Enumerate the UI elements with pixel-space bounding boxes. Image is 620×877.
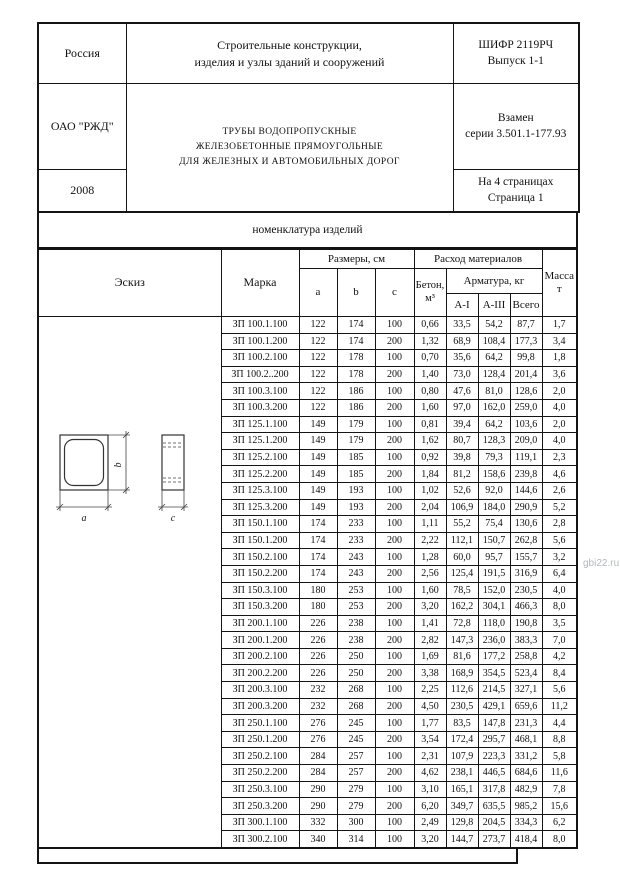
- value-cell: 112,1: [446, 532, 478, 549]
- value-cell: 0,66: [414, 317, 446, 334]
- value-cell: 418,4: [510, 831, 542, 848]
- value-cell: 226: [299, 615, 337, 632]
- value-cell: 1,7: [542, 317, 577, 334]
- value-cell: 200: [375, 665, 414, 682]
- value-cell: 230,5: [510, 582, 542, 599]
- value-cell: 523,4: [510, 665, 542, 682]
- value-cell: 11,6: [542, 765, 577, 782]
- value-cell: 4,4: [542, 715, 577, 732]
- doc-title-line2: ЖЕЛЕЗОБЕТОННЫЕ ПРЯМОУГОЛЬНЫЕ: [131, 140, 449, 155]
- value-cell: 39,4: [446, 416, 478, 433]
- mark-cell: ЗП 250.2.100: [221, 748, 299, 765]
- replaces-line2: серии 3.501.1-177.93: [458, 127, 575, 143]
- value-cell: 2,0: [542, 383, 577, 400]
- value-cell: 168,9: [446, 665, 478, 682]
- value-cell: 200: [375, 731, 414, 748]
- mark-cell: ЗП 100.1.200: [221, 333, 299, 350]
- mass-line2: т: [544, 283, 576, 296]
- value-cell: 122: [299, 383, 337, 400]
- value-cell: 3,6: [542, 366, 577, 383]
- dim-c: [158, 490, 188, 511]
- doc-title-line3: ДЛЯ ЖЕЛЕЗНЫХ И АВТОМОБИЛЬНЫХ ДОРОГ: [131, 155, 449, 170]
- doc-title-line1: ТРУБЫ ВОДОПРОПУСКНЫЕ: [131, 125, 449, 140]
- mark-cell: ЗП 250.1.200: [221, 731, 299, 748]
- value-cell: 2,82: [414, 632, 446, 649]
- value-cell: 95,7: [478, 549, 510, 566]
- value-cell: 349,7: [446, 798, 478, 815]
- value-cell: 279: [337, 798, 375, 815]
- value-cell: 200: [375, 366, 414, 383]
- value-cell: 15,6: [542, 798, 577, 815]
- value-cell: 2,0: [542, 416, 577, 433]
- mark-cell: ЗП 125.3.200: [221, 499, 299, 516]
- value-cell: 245: [337, 731, 375, 748]
- value-cell: 231,3: [510, 715, 542, 732]
- value-cell: 103,6: [510, 416, 542, 433]
- value-cell: 150,7: [478, 532, 510, 549]
- value-cell: 2,31: [414, 748, 446, 765]
- value-cell: 149: [299, 499, 337, 516]
- value-cell: 327,1: [510, 682, 542, 699]
- value-cell: 122: [299, 399, 337, 416]
- mark-cell: ЗП 100.3.200: [221, 399, 299, 416]
- value-cell: 204,5: [478, 814, 510, 831]
- value-cell: 2,49: [414, 814, 446, 831]
- concrete-line1: Бетон,: [416, 280, 445, 292]
- col-header-materials: Расход материалов: [414, 250, 542, 269]
- value-cell: 180: [299, 599, 337, 616]
- value-cell: 174: [299, 516, 337, 533]
- value-cell: 83,5: [446, 715, 478, 732]
- value-cell: 6,2: [542, 814, 577, 831]
- value-cell: 155,7: [510, 549, 542, 566]
- value-cell: 4,0: [542, 399, 577, 416]
- value-cell: 75,4: [478, 516, 510, 533]
- mark-cell: ЗП 100.2.100: [221, 350, 299, 367]
- value-cell: 3,54: [414, 731, 446, 748]
- value-cell: 100: [375, 781, 414, 798]
- value-cell: 128,6: [510, 383, 542, 400]
- value-cell: 119,1: [510, 449, 542, 466]
- col-header-mass: Масса т: [542, 250, 577, 317]
- value-cell: 200: [375, 399, 414, 416]
- value-cell: 186: [337, 399, 375, 416]
- value-cell: 130,6: [510, 516, 542, 533]
- value-cell: 3,5: [542, 615, 577, 632]
- value-cell: 147,8: [478, 715, 510, 732]
- value-cell: 3,2: [542, 549, 577, 566]
- value-cell: 262,8: [510, 532, 542, 549]
- section-title: номенклатура изделий: [37, 213, 578, 249]
- value-cell: 72,8: [446, 615, 478, 632]
- value-cell: 1,69: [414, 648, 446, 665]
- value-cell: 201,4: [510, 366, 542, 383]
- value-cell: 4,62: [414, 765, 446, 782]
- value-cell: 429,1: [478, 698, 510, 715]
- value-cell: 174: [337, 333, 375, 350]
- value-cell: 4,6: [542, 466, 577, 483]
- value-cell: 1,84: [414, 466, 446, 483]
- value-cell: 317,8: [478, 781, 510, 798]
- col-header-c: c: [375, 269, 414, 317]
- value-cell: 233: [337, 516, 375, 533]
- value-cell: 100: [375, 831, 414, 848]
- value-cell: 73,0: [446, 366, 478, 383]
- watermark-text: gbi22.ru: [583, 558, 619, 569]
- value-cell: 193: [337, 482, 375, 499]
- value-cell: 0,70: [414, 350, 446, 367]
- value-cell: 4,50: [414, 698, 446, 715]
- value-cell: 178: [337, 350, 375, 367]
- value-cell: 33,5: [446, 317, 478, 334]
- value-cell: 332: [299, 814, 337, 831]
- value-cell: 179: [337, 416, 375, 433]
- mark-cell: ЗП 125.1.100: [221, 416, 299, 433]
- value-cell: 100: [375, 582, 414, 599]
- doc-title-cell: ТРУБЫ ВОДОПРОПУСКНЫЕ ЖЕЛЕЗОБЕТОННЫЕ ПРЯМ…: [126, 84, 453, 213]
- mark-cell: ЗП 200.2.100: [221, 648, 299, 665]
- value-cell: 214,5: [478, 682, 510, 699]
- value-cell: 191,5: [478, 565, 510, 582]
- value-cell: 250: [337, 648, 375, 665]
- value-cell: 200: [375, 499, 414, 516]
- value-cell: 108,4: [478, 333, 510, 350]
- value-cell: 635,5: [478, 798, 510, 815]
- value-cell: 60,0: [446, 549, 478, 566]
- value-cell: 268: [337, 698, 375, 715]
- mark-cell: ЗП 200.1.200: [221, 632, 299, 649]
- pages-cell: На 4 страницах Страница 1: [453, 170, 579, 213]
- value-cell: 226: [299, 665, 337, 682]
- value-cell: 236,0: [478, 632, 510, 649]
- value-cell: 985,2: [510, 798, 542, 815]
- value-cell: 184,0: [478, 499, 510, 516]
- value-cell: 100: [375, 449, 414, 466]
- value-cell: 5,2: [542, 499, 577, 516]
- pages-line1: На 4 страницах: [458, 175, 575, 191]
- value-cell: 174: [299, 532, 337, 549]
- value-cell: 243: [337, 565, 375, 582]
- value-cell: 190,8: [510, 615, 542, 632]
- value-cell: 200: [375, 565, 414, 582]
- table-row: b a: [38, 317, 577, 334]
- value-cell: 290: [299, 798, 337, 815]
- value-cell: 100: [375, 814, 414, 831]
- value-cell: 1,8: [542, 350, 577, 367]
- value-cell: 226: [299, 632, 337, 649]
- value-cell: 1,40: [414, 366, 446, 383]
- value-cell: 200: [375, 698, 414, 715]
- value-cell: 100: [375, 549, 414, 566]
- value-cell: 100: [375, 715, 414, 732]
- value-cell: 200: [375, 599, 414, 616]
- value-cell: 55,2: [446, 516, 478, 533]
- value-cell: 100: [375, 482, 414, 499]
- value-cell: 250: [337, 665, 375, 682]
- value-cell: 8,4: [542, 665, 577, 682]
- value-cell: 482,9: [510, 781, 542, 798]
- value-cell: 2,25: [414, 682, 446, 699]
- value-cell: 4,0: [542, 582, 577, 599]
- value-cell: 178: [337, 366, 375, 383]
- value-cell: 92,0: [478, 482, 510, 499]
- value-cell: 122: [299, 333, 337, 350]
- value-cell: 81,2: [446, 466, 478, 483]
- value-cell: 466,3: [510, 599, 542, 616]
- value-cell: 5,6: [542, 532, 577, 549]
- value-cell: 186: [337, 383, 375, 400]
- value-cell: 295,7: [478, 731, 510, 748]
- value-cell: 64,2: [478, 350, 510, 367]
- value-cell: 162,2: [446, 599, 478, 616]
- value-cell: 162,0: [478, 399, 510, 416]
- value-cell: 684,6: [510, 765, 542, 782]
- col-header-rebar-a3: A-III: [478, 294, 510, 317]
- col-header-a: a: [299, 269, 337, 317]
- value-cell: 276: [299, 731, 337, 748]
- value-cell: 122: [299, 366, 337, 383]
- value-cell: 1,62: [414, 433, 446, 450]
- mark-cell: ЗП 200.3.200: [221, 698, 299, 715]
- value-cell: 2,56: [414, 565, 446, 582]
- value-cell: 279: [337, 781, 375, 798]
- code-cell: ШИФР 2119РЧ Выпуск 1-1: [453, 23, 579, 84]
- value-cell: 1,60: [414, 582, 446, 599]
- value-cell: 1,41: [414, 615, 446, 632]
- value-cell: 125,4: [446, 565, 478, 582]
- value-cell: 158,6: [478, 466, 510, 483]
- mark-cell: ЗП 300.1.100: [221, 814, 299, 831]
- document-page: Россия Строительные конструкции, изделия…: [37, 22, 578, 864]
- mark-cell: ЗП 150.3.200: [221, 599, 299, 616]
- mark-cell: ЗП 125.3.100: [221, 482, 299, 499]
- country-cell: Россия: [38, 23, 126, 84]
- sketch-cell: b a: [38, 317, 221, 849]
- value-cell: 64,2: [478, 416, 510, 433]
- footer-strip: [37, 849, 518, 864]
- mark-cell: ЗП 100.2..200: [221, 366, 299, 383]
- value-cell: 100: [375, 648, 414, 665]
- value-cell: 253: [337, 599, 375, 616]
- value-cell: 152,0: [478, 582, 510, 599]
- value-cell: 47,6: [446, 383, 478, 400]
- value-cell: 100: [375, 416, 414, 433]
- value-cell: 3,20: [414, 831, 446, 848]
- mark-cell: ЗП 200.2.200: [221, 665, 299, 682]
- nomenclature-table: Эскиз Марка Размеры, см Расход материало…: [37, 249, 578, 849]
- value-cell: 209,0: [510, 433, 542, 450]
- value-cell: 149: [299, 466, 337, 483]
- value-cell: 200: [375, 433, 414, 450]
- value-cell: 3,20: [414, 599, 446, 616]
- value-cell: 144,7: [446, 831, 478, 848]
- value-cell: 179: [337, 433, 375, 450]
- mark-cell: ЗП 100.3.100: [221, 383, 299, 400]
- value-cell: 468,1: [510, 731, 542, 748]
- value-cell: 128,3: [478, 433, 510, 450]
- year-cell: 2008: [38, 170, 126, 213]
- value-cell: 8,0: [542, 831, 577, 848]
- value-cell: 54,2: [478, 317, 510, 334]
- value-cell: 273,7: [478, 831, 510, 848]
- value-cell: 3,4: [542, 333, 577, 350]
- value-cell: 340: [299, 831, 337, 848]
- value-cell: 300: [337, 814, 375, 831]
- value-cell: 226: [299, 648, 337, 665]
- value-cell: 259,0: [510, 399, 542, 416]
- dim-b: [108, 431, 130, 494]
- replaces-cell: Взамен серии 3.501.1-177.93: [453, 84, 579, 170]
- col-header-rebar: Арматура, кг: [446, 269, 542, 294]
- value-cell: 1,77: [414, 715, 446, 732]
- value-cell: 99,8: [510, 350, 542, 367]
- value-cell: 2,3: [542, 449, 577, 466]
- value-cell: 238: [337, 615, 375, 632]
- mark-cell: ЗП 250.3.200: [221, 798, 299, 815]
- value-cell: 177,2: [478, 648, 510, 665]
- value-cell: 129,8: [446, 814, 478, 831]
- value-cell: 68,9: [446, 333, 478, 350]
- col-header-concrete: Бетон, м³: [414, 269, 446, 317]
- value-cell: 79,3: [478, 449, 510, 466]
- value-cell: 100: [375, 350, 414, 367]
- value-cell: 284: [299, 765, 337, 782]
- value-cell: 1,11: [414, 516, 446, 533]
- value-cell: 1,60: [414, 399, 446, 416]
- side-view-hidden-lines: [163, 443, 183, 482]
- value-cell: 144,6: [510, 482, 542, 499]
- value-cell: 232: [299, 682, 337, 699]
- value-cell: 149: [299, 449, 337, 466]
- value-cell: 2,04: [414, 499, 446, 516]
- mark-cell: ЗП 125.2.100: [221, 449, 299, 466]
- value-cell: 6,4: [542, 565, 577, 582]
- mark-cell: ЗП 250.1.100: [221, 715, 299, 732]
- value-cell: 200: [375, 532, 414, 549]
- value-cell: 87,7: [510, 317, 542, 334]
- value-cell: 1,02: [414, 482, 446, 499]
- value-cell: 354,5: [478, 665, 510, 682]
- value-cell: 257: [337, 765, 375, 782]
- value-cell: 276: [299, 715, 337, 732]
- value-cell: 149: [299, 416, 337, 433]
- value-cell: 2,6: [542, 482, 577, 499]
- value-cell: 100: [375, 516, 414, 533]
- mark-cell: ЗП 250.2.200: [221, 765, 299, 782]
- col-header-dimensions: Размеры, см: [299, 250, 414, 269]
- value-cell: 100: [375, 383, 414, 400]
- value-cell: 200: [375, 632, 414, 649]
- front-view: [60, 435, 108, 490]
- col-header-mark: Марка: [221, 250, 299, 317]
- value-cell: 243: [337, 549, 375, 566]
- value-cell: 174: [299, 565, 337, 582]
- dim-a: [56, 490, 112, 511]
- dim-label-a: a: [81, 513, 86, 524]
- value-cell: 107,9: [446, 748, 478, 765]
- mark-cell: ЗП 150.2.100: [221, 549, 299, 566]
- value-cell: 238,1: [446, 765, 478, 782]
- value-cell: 334,3: [510, 814, 542, 831]
- mark-cell: ЗП 200.1.100: [221, 615, 299, 632]
- col-header-sketch: Эскиз: [38, 250, 221, 317]
- category-cell: Строительные конструкции, изделия и узлы…: [126, 23, 453, 84]
- value-cell: 446,5: [478, 765, 510, 782]
- value-cell: 2,22: [414, 532, 446, 549]
- col-header-rebar-total: Всего: [510, 294, 542, 317]
- value-cell: 112,6: [446, 682, 478, 699]
- mark-cell: ЗП 150.3.100: [221, 582, 299, 599]
- value-cell: 106,9: [446, 499, 478, 516]
- mark-cell: ЗП 150.1.100: [221, 516, 299, 533]
- value-cell: 165,1: [446, 781, 478, 798]
- value-cell: 659,6: [510, 698, 542, 715]
- value-cell: 100: [375, 748, 414, 765]
- value-cell: 258,8: [510, 648, 542, 665]
- value-cell: 174: [337, 317, 375, 334]
- value-cell: 1,28: [414, 549, 446, 566]
- pages-line2: Страница 1: [458, 191, 575, 207]
- value-cell: 383,3: [510, 632, 542, 649]
- mark-cell: ЗП 250.3.100: [221, 781, 299, 798]
- value-cell: 331,2: [510, 748, 542, 765]
- value-cell: 8,8: [542, 731, 577, 748]
- value-cell: 0,80: [414, 383, 446, 400]
- value-cell: 200: [375, 333, 414, 350]
- mark-cell: ЗП 100.1.100: [221, 317, 299, 334]
- value-cell: 5,6: [542, 682, 577, 699]
- value-cell: 122: [299, 317, 337, 334]
- concrete-line2: м³: [416, 293, 445, 305]
- value-cell: 316,9: [510, 565, 542, 582]
- value-cell: 81,0: [478, 383, 510, 400]
- code-line2: Выпуск 1-1: [458, 54, 575, 70]
- value-cell: 4,2: [542, 648, 577, 665]
- value-cell: 100: [375, 615, 414, 632]
- value-cell: 193: [337, 499, 375, 516]
- value-cell: 233: [337, 532, 375, 549]
- value-cell: 200: [375, 798, 414, 815]
- value-cell: 78,5: [446, 582, 478, 599]
- value-cell: 1,32: [414, 333, 446, 350]
- value-cell: 223,3: [478, 748, 510, 765]
- value-cell: 3,10: [414, 781, 446, 798]
- value-cell: 304,1: [478, 599, 510, 616]
- value-cell: 290,9: [510, 499, 542, 516]
- value-cell: 6,20: [414, 798, 446, 815]
- value-cell: 52,6: [446, 482, 478, 499]
- value-cell: 118,0: [478, 615, 510, 632]
- pipe-sketch-drawing: b a: [50, 429, 210, 529]
- value-cell: 238: [337, 632, 375, 649]
- mark-cell: ЗП 150.1.200: [221, 532, 299, 549]
- value-cell: 284: [299, 748, 337, 765]
- value-cell: 245: [337, 715, 375, 732]
- value-cell: 177,3: [510, 333, 542, 350]
- value-cell: 149: [299, 433, 337, 450]
- mark-cell: ЗП 125.1.200: [221, 433, 299, 450]
- mark-cell: ЗП 125.2.200: [221, 466, 299, 483]
- mass-line1: Масса: [544, 270, 576, 283]
- value-cell: 147,3: [446, 632, 478, 649]
- title-block: Россия Строительные конструкции, изделия…: [37, 22, 580, 213]
- value-cell: 0,81: [414, 416, 446, 433]
- value-cell: 290: [299, 781, 337, 798]
- category-line2: изделия и узлы зданий и сооружений: [131, 54, 449, 70]
- value-cell: 3,38: [414, 665, 446, 682]
- value-cell: 7,8: [542, 781, 577, 798]
- mark-cell: ЗП 300.2.100: [221, 831, 299, 848]
